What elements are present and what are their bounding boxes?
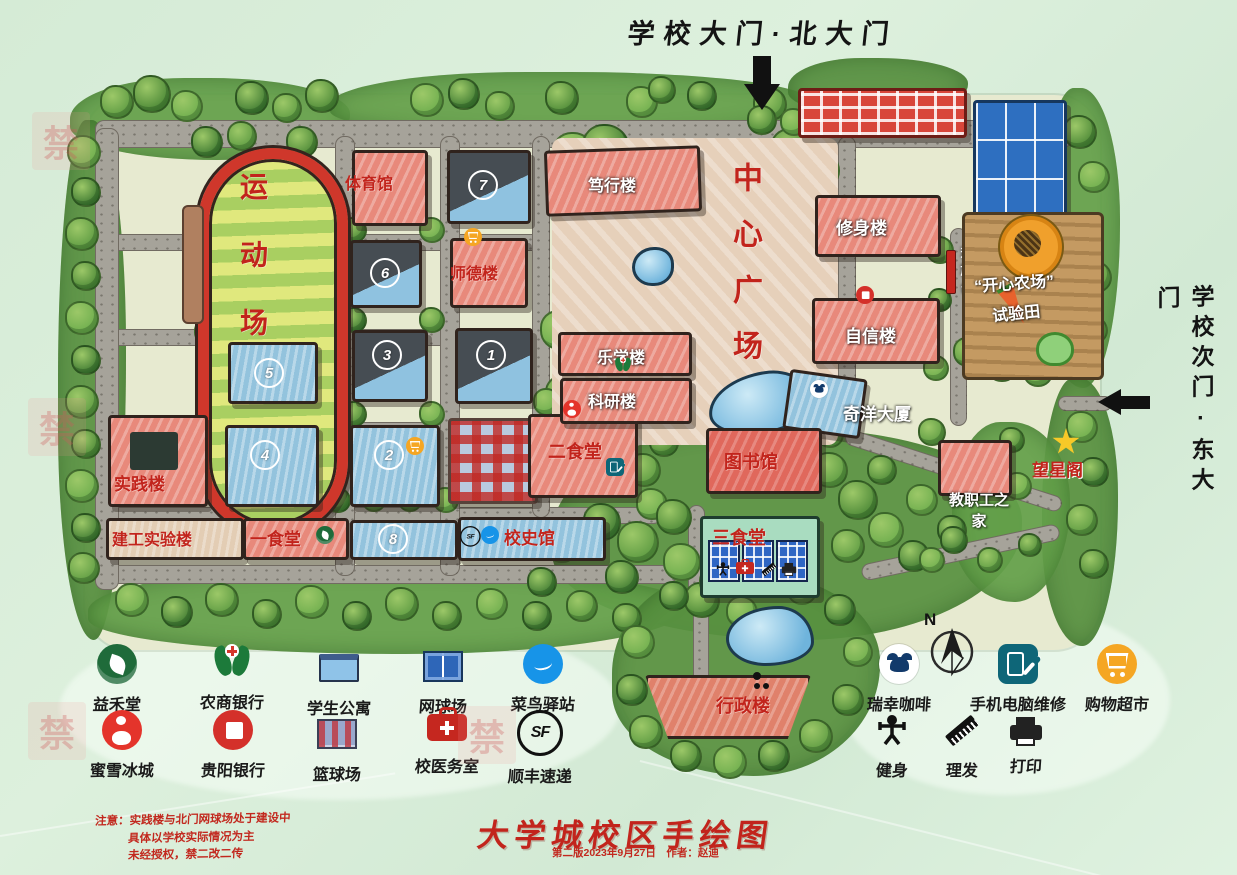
legend-item-print: 打印 <box>961 706 1091 777</box>
tree <box>448 78 480 110</box>
gymnasium-label: 体育馆 <box>345 170 393 194</box>
wangxing-label: 望星阁 <box>1032 456 1083 481</box>
cainiao-station-icon <box>523 644 563 684</box>
tree <box>1063 115 1097 149</box>
tree <box>65 469 99 503</box>
tree <box>659 581 689 611</box>
red-grid-building <box>448 418 538 504</box>
building-1-number: 1 <box>476 340 506 370</box>
flag-platform-marker <box>946 250 956 294</box>
shide-label: 师德楼 <box>450 260 498 284</box>
fitness-icon <box>714 560 732 580</box>
legend-label: 贵阳银行 <box>200 757 266 781</box>
tree <box>1079 549 1109 579</box>
tree <box>545 81 579 115</box>
zixin-label: 自信楼 <box>845 322 896 347</box>
building-2-number: 2 <box>374 440 404 470</box>
forbidden-watermark: 禁 <box>28 702 86 760</box>
keyan-label: 科研楼 <box>588 388 636 412</box>
building-8-number: 8 <box>378 524 408 554</box>
tree <box>648 76 676 104</box>
map-subtitle: 第二版2023年9月27日 作者：赵迪 <box>552 845 719 860</box>
sf-logo-text: SF <box>531 724 549 742</box>
medical-cross-icon <box>736 562 754 574</box>
tree <box>295 585 329 619</box>
tree <box>621 625 655 659</box>
north-gate-title: 学校大门·北大门 <box>626 12 900 51</box>
test-field-label: 试验田 <box>991 298 1041 327</box>
tree <box>227 121 257 151</box>
tree <box>476 588 508 620</box>
tree <box>566 590 598 622</box>
forbidden-watermark: 禁 <box>32 112 90 170</box>
red-cross-icon <box>225 644 239 658</box>
tree <box>65 217 99 251</box>
shopping-cart-icon <box>464 228 482 246</box>
central-plaza-label: 中心广场 <box>722 162 766 392</box>
tree <box>71 261 101 291</box>
luckin-coffee-icon <box>810 380 828 398</box>
footer-note-line3: 未经授权，禁二改二传 <box>128 846 244 864</box>
legend-label: 顺丰速递 <box>507 763 573 787</box>
legend-label: 蜜雪冰城 <box>89 757 155 781</box>
north-dorm-building <box>798 88 967 138</box>
tree <box>1079 457 1109 487</box>
faculty-home-building <box>938 440 1012 496</box>
jiangong-label: 建工实验楼 <box>112 526 192 550</box>
east-gate-arrow-head <box>1098 389 1121 415</box>
tree <box>758 740 790 772</box>
tree <box>868 512 904 548</box>
tree <box>527 567 557 597</box>
admin-label: 行政楼 <box>716 692 770 718</box>
tree <box>191 126 223 158</box>
tree <box>71 345 101 375</box>
people-icon <box>753 672 761 680</box>
sunflower-center <box>1014 230 1041 257</box>
shijian-courtyard <box>130 432 178 470</box>
tree <box>656 499 692 535</box>
tree <box>617 521 659 563</box>
guiyang-bank-icon <box>213 710 253 750</box>
tennis-court-icon <box>423 646 463 686</box>
duxing-label: 笃行楼 <box>588 172 636 196</box>
yihetang-icon <box>97 644 137 684</box>
sf-express-icon: SF <box>460 526 481 547</box>
tree <box>605 560 639 594</box>
tree <box>205 583 239 617</box>
guiyang-bank-icon <box>856 286 874 304</box>
building-7-number: 7 <box>468 170 498 200</box>
tree <box>616 674 648 706</box>
basketball-court-icon <box>317 714 357 754</box>
tree <box>235 81 269 115</box>
tree <box>71 177 101 207</box>
tennis-courts-building <box>973 100 1067 222</box>
tree <box>305 79 339 113</box>
legend-label: 购物超市 <box>1084 691 1150 715</box>
haircut-comb-icon <box>760 560 778 578</box>
tree <box>670 740 702 772</box>
qiyang-label: 奇洋大厦 <box>843 400 911 425</box>
tree <box>342 601 372 631</box>
xiushen-label: 修身楼 <box>836 214 887 239</box>
forbidden-watermark: 禁 <box>458 706 516 764</box>
building-4-number: 4 <box>250 440 280 470</box>
tree <box>161 596 193 628</box>
mixue-icon <box>563 400 581 418</box>
canteen1-label: 一食堂 <box>250 525 301 550</box>
tree <box>824 594 856 626</box>
library-label: 图书馆 <box>724 448 778 474</box>
compass: N <box>922 614 978 683</box>
hand-drawn-campus-map: 中心广场 运动场 体育馆 7 6 师德楼 3 1 5 4 2 实践楼 建工实验楼… <box>0 0 1237 875</box>
phone-computer-repair-icon <box>998 644 1038 684</box>
east-gate-arrow <box>1120 396 1150 409</box>
legend-item-cainiao: 菜鸟驿站 <box>478 644 608 715</box>
tree <box>919 547 945 573</box>
tree <box>831 529 865 563</box>
tree <box>272 93 302 123</box>
tree <box>977 547 1003 573</box>
cabbage <box>1036 332 1074 366</box>
rural-commercial-bank-icon <box>212 642 252 682</box>
tree <box>252 599 282 629</box>
tree <box>65 301 99 335</box>
legend-item-supermarket: 购物超市 <box>1052 644 1182 715</box>
tree <box>485 91 515 121</box>
cainiao-station-icon <box>481 526 499 544</box>
rural-commercial-bank-icon <box>614 356 632 374</box>
shopping-cart-icon <box>1097 644 1137 684</box>
luckin-coffee-icon <box>879 644 919 684</box>
shijian-label: 实践楼 <box>114 470 165 495</box>
sf-express-icon: SF <box>517 710 563 756</box>
tree <box>687 81 717 111</box>
tree <box>906 484 938 516</box>
tree <box>171 90 203 122</box>
tree <box>629 715 663 749</box>
track-stand <box>182 205 204 324</box>
printer-icon <box>780 558 798 576</box>
tree <box>71 513 101 543</box>
canteen3-label: 三食堂 <box>712 524 766 550</box>
small-pond <box>632 247 674 286</box>
tree <box>385 587 419 621</box>
tree <box>100 85 134 119</box>
legend-label: 篮球场 <box>312 761 362 785</box>
footer-note-line1: 注意：实践楼与北门网球场处于建设中 <box>95 810 291 829</box>
tree <box>68 552 100 584</box>
tree <box>867 455 897 485</box>
mixue-icon <box>102 710 142 750</box>
building-6-number: 6 <box>370 258 400 288</box>
tree <box>1078 161 1110 193</box>
tree <box>1018 533 1042 557</box>
north-gate-arrow <box>753 56 771 84</box>
shopping-cart-icon <box>406 437 424 455</box>
tree <box>410 83 444 117</box>
building-5-number: 5 <box>254 358 284 388</box>
tree <box>838 480 878 520</box>
tree <box>713 745 747 779</box>
printer-icon <box>1006 706 1046 746</box>
building-3-number: 3 <box>372 340 402 370</box>
faculty-home-label: 教职工之家 <box>946 490 1012 532</box>
forbidden-watermark: 禁 <box>28 398 86 456</box>
north-gate-arrow-head <box>744 84 780 110</box>
east-gate-title: 学校次门·东大门 <box>1150 284 1218 501</box>
tree <box>1066 504 1098 536</box>
tree <box>432 601 462 631</box>
legend-label: 打印 <box>1009 753 1043 777</box>
student-apartment-icon <box>319 648 359 688</box>
tree <box>522 601 552 631</box>
compass-n-label: N <box>924 610 936 630</box>
phone-repair-icon <box>606 458 624 476</box>
tree <box>115 583 149 617</box>
canteen2-label: 二食堂 <box>548 438 602 464</box>
tree <box>133 75 171 113</box>
yihetang-icon <box>316 526 334 544</box>
footer-note-line2: 具体以学校实际情况为主 <box>128 829 255 847</box>
tree <box>663 543 701 581</box>
tree <box>419 401 445 427</box>
history-hall-label: 校史馆 <box>504 524 555 549</box>
